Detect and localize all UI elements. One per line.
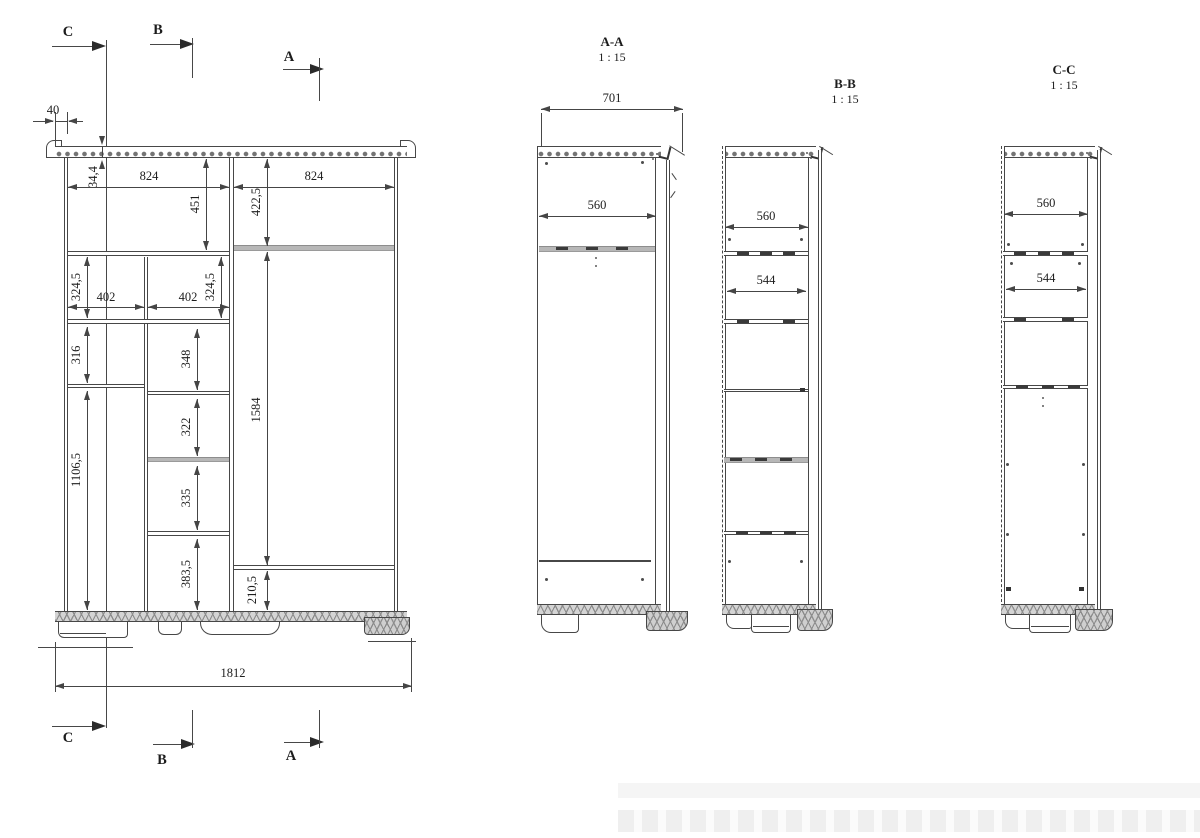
dim-overhang-tick-r: [67, 112, 68, 134]
aa-door-profile-nick-2: [670, 191, 676, 198]
cc-colon-dot-1: [1042, 397, 1044, 399]
section-aa-title: A-A: [582, 34, 642, 50]
cc-foot-center: [1029, 615, 1071, 633]
aa-shelf-dash-3: [616, 247, 628, 250]
cut-arrow-shaft-c-top: [52, 46, 92, 47]
bb-shelf-3: [724, 389, 808, 392]
dim-mid-box-width-label: 402: [158, 289, 218, 305]
aa-colon-dot-2: [595, 265, 597, 267]
bb-foot-left: [726, 615, 752, 629]
dim-bay-left-label: 824: [119, 168, 179, 184]
dim-mid-shelf1-label: 348: [178, 327, 194, 391]
dim-overhang-line: [55, 121, 67, 122]
dim-right-tall-line: [267, 252, 268, 565]
dim-overall-width-label: 1812: [203, 665, 263, 681]
cut-marker-b-top: B: [148, 22, 168, 39]
front-foot-left: [58, 622, 128, 638]
front-foot-center: [200, 622, 280, 635]
bb-shelf5-dash-1: [736, 531, 748, 534]
front-foot-small: [158, 622, 182, 635]
bb-shelf2-dash-1: [737, 320, 749, 323]
section-aa-scale: 1 : 15: [582, 50, 642, 65]
cc-colon-dot-2: [1042, 405, 1044, 407]
cut-arrow-shaft-b-bottom: [153, 744, 181, 745]
cut-marker-a-bottom: A: [281, 748, 301, 765]
cc-shelf3-dash-1: [1016, 385, 1028, 388]
bb-foot-center-step: [753, 626, 789, 627]
bb-shelf4-dash-1: [730, 458, 742, 461]
bb-shelf5-dash-2: [760, 531, 772, 534]
cc-dot-7: [1006, 533, 1009, 536]
dim-left-tall-label: 1106,5: [68, 438, 84, 502]
shelf-top-right-gray: [234, 245, 394, 251]
dim-bb-drawer-line: [727, 291, 806, 292]
dim-right-bottom-label: 210,5: [244, 558, 260, 622]
cc-dot-5: [1006, 463, 1009, 466]
dim-cc-shelf-line: [1004, 214, 1088, 215]
bb-shelf3-clip: [800, 388, 805, 392]
dim-cc-drawer-line: [1006, 289, 1086, 290]
section-bb-title: B-B: [815, 76, 875, 92]
dim-left-box-height-line: [87, 257, 88, 318]
dim-bay-right-label: 824: [284, 168, 344, 184]
dim-right-bottom-line: [267, 571, 268, 610]
cc-dot-8: [1082, 533, 1085, 536]
cut-arrowhead-c-bottom: [92, 721, 106, 731]
front-foot-left-step: [60, 633, 106, 634]
dim-mid-shelf3-label: 335: [178, 466, 194, 530]
dim-bb-drawer-label: 544: [736, 272, 796, 288]
bb-shelf1-dash-1: [737, 252, 749, 255]
dim-overhang-label: 40: [38, 102, 68, 118]
cut-arrowhead-a-bottom: [310, 737, 324, 747]
dim-mid-shelf4-line: [197, 539, 198, 610]
cc-foot-right: [1075, 609, 1113, 631]
dim-top-panel-line: [102, 147, 103, 158]
cc-shelf3-dash-3: [1068, 385, 1080, 388]
aa-foot-right: [646, 611, 688, 631]
bb-dot-3: [728, 560, 731, 563]
cc-foot-center-step: [1031, 626, 1069, 627]
technical-drawing-wardrobe: C B A 40 34,4 824 824 451 422,5: [0, 0, 1200, 838]
dim-aa-depth-line: [541, 109, 683, 110]
cc-fitting-sq-2: [1079, 587, 1084, 591]
cc-dot-2: [1081, 243, 1084, 246]
dim-bb-shelf-label: 560: [736, 208, 796, 224]
dim-aa-shelf-label: 560: [567, 197, 627, 213]
bb-screw-speck-2: [810, 157, 812, 159]
cut-arrow-shaft-b-top: [150, 44, 180, 45]
bb-dot-4: [800, 560, 803, 563]
dim-mid-shelf2-line: [197, 399, 198, 456]
bb-dot-2: [800, 238, 803, 241]
aa-bottom-plinth-strip: [537, 604, 661, 615]
section-cc-title: C-C: [1034, 62, 1094, 78]
front-foot-right: [364, 617, 410, 635]
cc-dot-3: [1010, 262, 1013, 265]
aa-colon-dot-1: [595, 257, 597, 259]
dim-overall-ext-r: [411, 638, 412, 692]
section-bb-scale: 1 : 15: [815, 92, 875, 107]
shelf-mid-cell-2: [148, 531, 229, 536]
dim-top-left-height-line: [206, 159, 207, 250]
aa-screw-dot-3: [545, 578, 548, 581]
section-cut-tick-a-bottom: [319, 710, 320, 748]
center-partition: [229, 158, 234, 612]
dim-bb-shelf-line: [725, 227, 808, 228]
cc-shelf1-dash-2: [1038, 252, 1050, 255]
cc-top-trim-strip: [1001, 146, 1095, 158]
dim-left-shelf-height-line: [87, 327, 88, 383]
cc-dot-6: [1082, 463, 1085, 466]
dim-overhang-ext-shaft-r: [69, 121, 83, 122]
aa-shelf-dash-1: [556, 247, 568, 250]
cc-door-panel: [1097, 150, 1101, 618]
cc-foot-left: [1005, 615, 1031, 629]
cut-arrowhead-a-top: [310, 64, 324, 74]
dim-top-right-height-line: [267, 159, 268, 246]
dim-left-tall-line: [87, 391, 88, 610]
dim-mid-box-height-label: 324,5: [202, 255, 218, 319]
section-cut-tick-b-top: [192, 38, 193, 78]
cc-dot-4: [1078, 262, 1081, 265]
cc-screw-speck-1: [1086, 152, 1088, 154]
dim-mid-box-width-line: [148, 307, 229, 308]
dim-left-shelf-height-label: 316: [68, 323, 84, 387]
cut-arrow-shaft-a-top: [283, 69, 310, 70]
dim-top-left-height-label: 451: [187, 172, 203, 236]
cut-marker-c-bottom: C: [58, 730, 78, 747]
cc-screw-speck-2: [1090, 157, 1092, 159]
dim-mid-shelf1-line: [197, 329, 198, 390]
aa-screw-dot-1: [545, 162, 548, 165]
dim-mid-shelf2-label: 322: [178, 395, 194, 459]
cc-front-inner-line: [1087, 158, 1088, 605]
bb-foot-right: [797, 609, 833, 631]
dim-mid-shelf3-line: [197, 466, 198, 530]
bb-dot-1: [728, 238, 731, 241]
aa-screw-speck-1: [652, 158, 654, 160]
bb-front-inner-line: [808, 158, 809, 605]
dim-aa-depth-label: 701: [582, 90, 642, 106]
cc-shelf1-dash-3: [1062, 252, 1074, 255]
mid-partition: [144, 257, 148, 612]
bb-shelf4-dash-3: [780, 458, 792, 461]
section-cc-scale: 1 : 15: [1034, 78, 1094, 93]
aa-top-trim-strip: [537, 146, 661, 158]
dim-bay-left-line: [68, 187, 229, 188]
dim-aa-depth-ext-r: [682, 113, 683, 152]
cc-shelf3-dash-2: [1042, 385, 1054, 388]
bb-back-panel-line: [722, 146, 726, 612]
bb-top-trim-strip: [722, 146, 816, 158]
bb-foot-center: [751, 615, 791, 633]
bb-shelf5-dash-3: [784, 531, 796, 534]
bb-shelf2-dash-2: [783, 320, 795, 323]
cc-shelf1-dash-1: [1014, 252, 1026, 255]
section-cut-tick-b-bottom: [192, 710, 193, 748]
cut-marker-c-top: C: [58, 24, 78, 41]
right-side-panel: [394, 158, 398, 612]
aa-screw-speck-2: [656, 153, 658, 155]
cut-marker-b-bottom: B: [152, 752, 172, 769]
dim-aa-shelf-line: [539, 216, 656, 217]
bottom-plinth-strip: [55, 611, 407, 622]
aa-door-panel: [666, 160, 670, 618]
aa-screw-dot-4: [641, 578, 644, 581]
top-trim-strip: [55, 146, 407, 158]
aa-screw-dot-2: [641, 161, 644, 164]
cut-marker-a-top: A: [279, 49, 299, 66]
front-foot-right-bracket: [368, 641, 416, 642]
aa-lower-shelf-line: [539, 560, 651, 562]
cut-arrowhead-c-top: [92, 41, 106, 51]
cc-dot-1: [1007, 243, 1010, 246]
dim-mid-shelf4-label: 383,5: [178, 542, 194, 606]
aa-door-profile-nick-1: [671, 173, 677, 180]
dim-top-right-height-label: 422,5: [248, 170, 264, 234]
dim-right-tall-label: 1584: [248, 378, 264, 442]
bb-door-panel: [818, 150, 822, 618]
dim-top-panel-label: 34,4: [85, 145, 101, 209]
dim-overhang-tick-l: [55, 112, 56, 146]
bb-shelf1-dash-2: [760, 252, 772, 255]
cc-fitting-sq-1: [1006, 587, 1011, 591]
dim-aa-depth-ext-l: [541, 113, 542, 146]
dim-left-box-width-line: [68, 307, 144, 308]
scan-artifact-band-1: [618, 783, 1200, 798]
bb-shelf4-dash-2: [755, 458, 767, 461]
shelf-mid-left: [68, 319, 229, 324]
dim-left-box-width-label: 402: [76, 289, 136, 305]
cc-shelf2-dash-2: [1062, 318, 1074, 321]
section-cut-tick-a-top: [319, 58, 320, 101]
dim-cc-drawer-label: 544: [1016, 270, 1076, 286]
scan-artifact-band-2: [618, 810, 1200, 832]
cut-arrow-shaft-c-bottom: [52, 726, 92, 727]
dim-cc-shelf-label: 560: [1016, 195, 1076, 211]
cut-arrow-shaft-a-bottom: [284, 742, 310, 743]
dim-overall-width-line: [55, 686, 412, 687]
cc-shelf2-dash-1: [1014, 318, 1026, 321]
aa-foot-left: [541, 615, 579, 633]
aa-shelf-dash-2: [586, 247, 598, 250]
aa-front-inner-line: [655, 158, 656, 605]
bb-screw-speck-1: [806, 152, 808, 154]
front-foot-left-bracket: [38, 647, 133, 648]
bb-shelf1-dash-3: [783, 252, 795, 255]
dim-overall-ext-l: [55, 642, 56, 692]
